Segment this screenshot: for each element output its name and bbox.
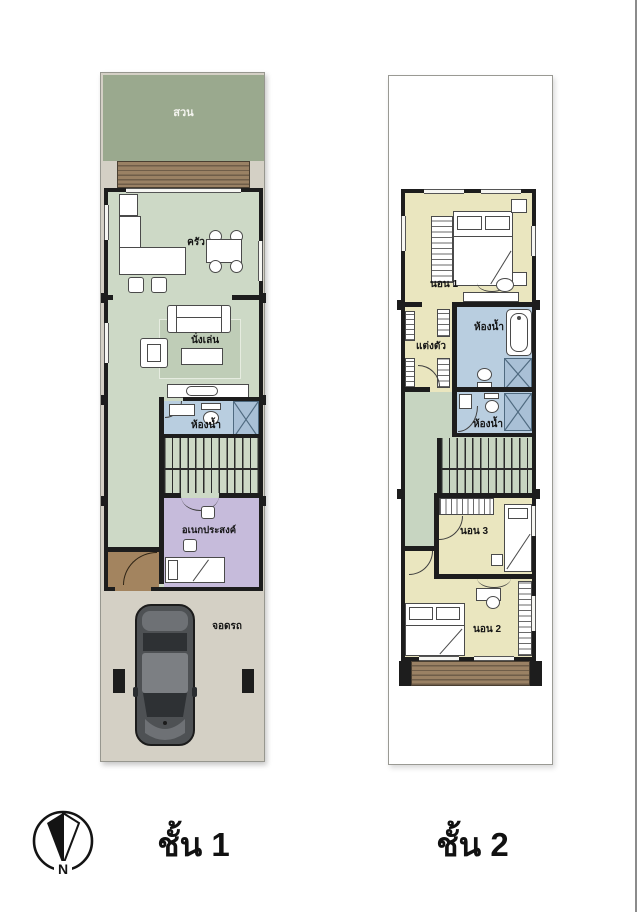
car-icon (133, 599, 197, 749)
bathroom-lower-label: ห้องน้ำ (460, 419, 516, 431)
dining-chair (230, 260, 243, 273)
multipurpose-label: อเนกประสงค์ (164, 525, 254, 537)
fridge (119, 194, 138, 216)
shelf-unit (437, 309, 450, 337)
balcony-deck (411, 661, 530, 686)
bathroom-upper-label: ห้องน้ำ (461, 322, 517, 334)
column-tick (262, 293, 266, 303)
window (481, 189, 521, 194)
wardrobe-rail (405, 311, 415, 341)
column-tick (397, 300, 401, 310)
column-tick (262, 395, 266, 405)
window (531, 506, 536, 536)
garden-label: สวน (101, 107, 266, 119)
window (424, 189, 464, 194)
column-tick (536, 489, 540, 499)
column-tick (101, 395, 105, 405)
window (401, 216, 406, 251)
column-tick (101, 293, 105, 303)
floor1-title: ชั้น 1 (126, 818, 261, 871)
window (531, 226, 536, 256)
balcony-column (399, 661, 411, 686)
sink (186, 386, 218, 396)
coffee-table (181, 348, 223, 365)
stool (151, 277, 167, 293)
stool (496, 278, 514, 292)
bedroom3-label: นอน 3 (449, 526, 499, 538)
bath-shelf (169, 404, 195, 416)
dining-chair (209, 260, 222, 273)
column-tick (101, 496, 105, 506)
nightstand (511, 199, 527, 213)
window (258, 241, 263, 281)
toilet-tank (484, 393, 499, 399)
deck (117, 161, 250, 188)
toilet-bowl (477, 368, 492, 381)
carport-column (113, 669, 125, 693)
staircase-floor2 (441, 438, 532, 493)
wall (452, 433, 532, 437)
bed-double (453, 211, 513, 286)
bathroom1-label: ห้องน้ำ (181, 420, 231, 432)
floor2-plan: นอน 1 แต่งตัว ห้องน้ำ (388, 75, 553, 765)
column-tick (397, 489, 401, 499)
wardrobe (518, 581, 532, 656)
toilet-tank (201, 403, 221, 410)
column-tick (262, 496, 266, 506)
sliding-door (126, 188, 241, 193)
window (104, 323, 109, 363)
window (531, 596, 536, 631)
wardrobe (431, 216, 453, 283)
floorplan-page: สวน ครัว (0, 0, 640, 912)
column-tick (536, 300, 540, 310)
sofa (167, 305, 231, 333)
bed-single (165, 557, 225, 583)
balcony-column (530, 661, 542, 686)
bed-double (405, 603, 465, 656)
stool (486, 596, 500, 609)
parking-label: จอดรถ (202, 621, 252, 633)
kitchen-counter-horizontal (119, 247, 186, 275)
staircase-floor1 (164, 438, 259, 493)
bedroom1-label: นอน 1 (419, 279, 469, 291)
window (104, 205, 109, 240)
shower (233, 401, 259, 438)
armchair (140, 338, 168, 368)
dressing-label: แต่งตัว (403, 341, 459, 353)
hall (405, 493, 434, 546)
toilet-bowl (485, 400, 499, 413)
floor1-plan: สวน ครัว (100, 72, 265, 762)
nightstand (512, 272, 527, 286)
kitchen-label: ครัว (176, 237, 216, 249)
stool (128, 277, 144, 293)
compass-icon: N (27, 803, 99, 881)
wall-stub (232, 295, 263, 300)
wall-stub (104, 295, 113, 300)
stool (201, 506, 215, 519)
entry-threshold (115, 587, 151, 591)
wardrobe (439, 498, 494, 515)
wall (401, 302, 422, 307)
bedroom2-label: นอน 2 (462, 624, 512, 636)
nightstand (491, 554, 503, 566)
dressing-table (463, 292, 519, 302)
wardrobe-rail (405, 358, 415, 388)
living-label: นั่งเล่น (180, 335, 230, 347)
compass-north-label: N (58, 861, 68, 877)
bed-single (504, 504, 532, 572)
floor2-title: ชั้น 2 (405, 818, 540, 871)
carport-column (242, 669, 254, 693)
shower (504, 358, 532, 390)
page-edge-line (635, 0, 637, 912)
side-table (183, 539, 197, 552)
